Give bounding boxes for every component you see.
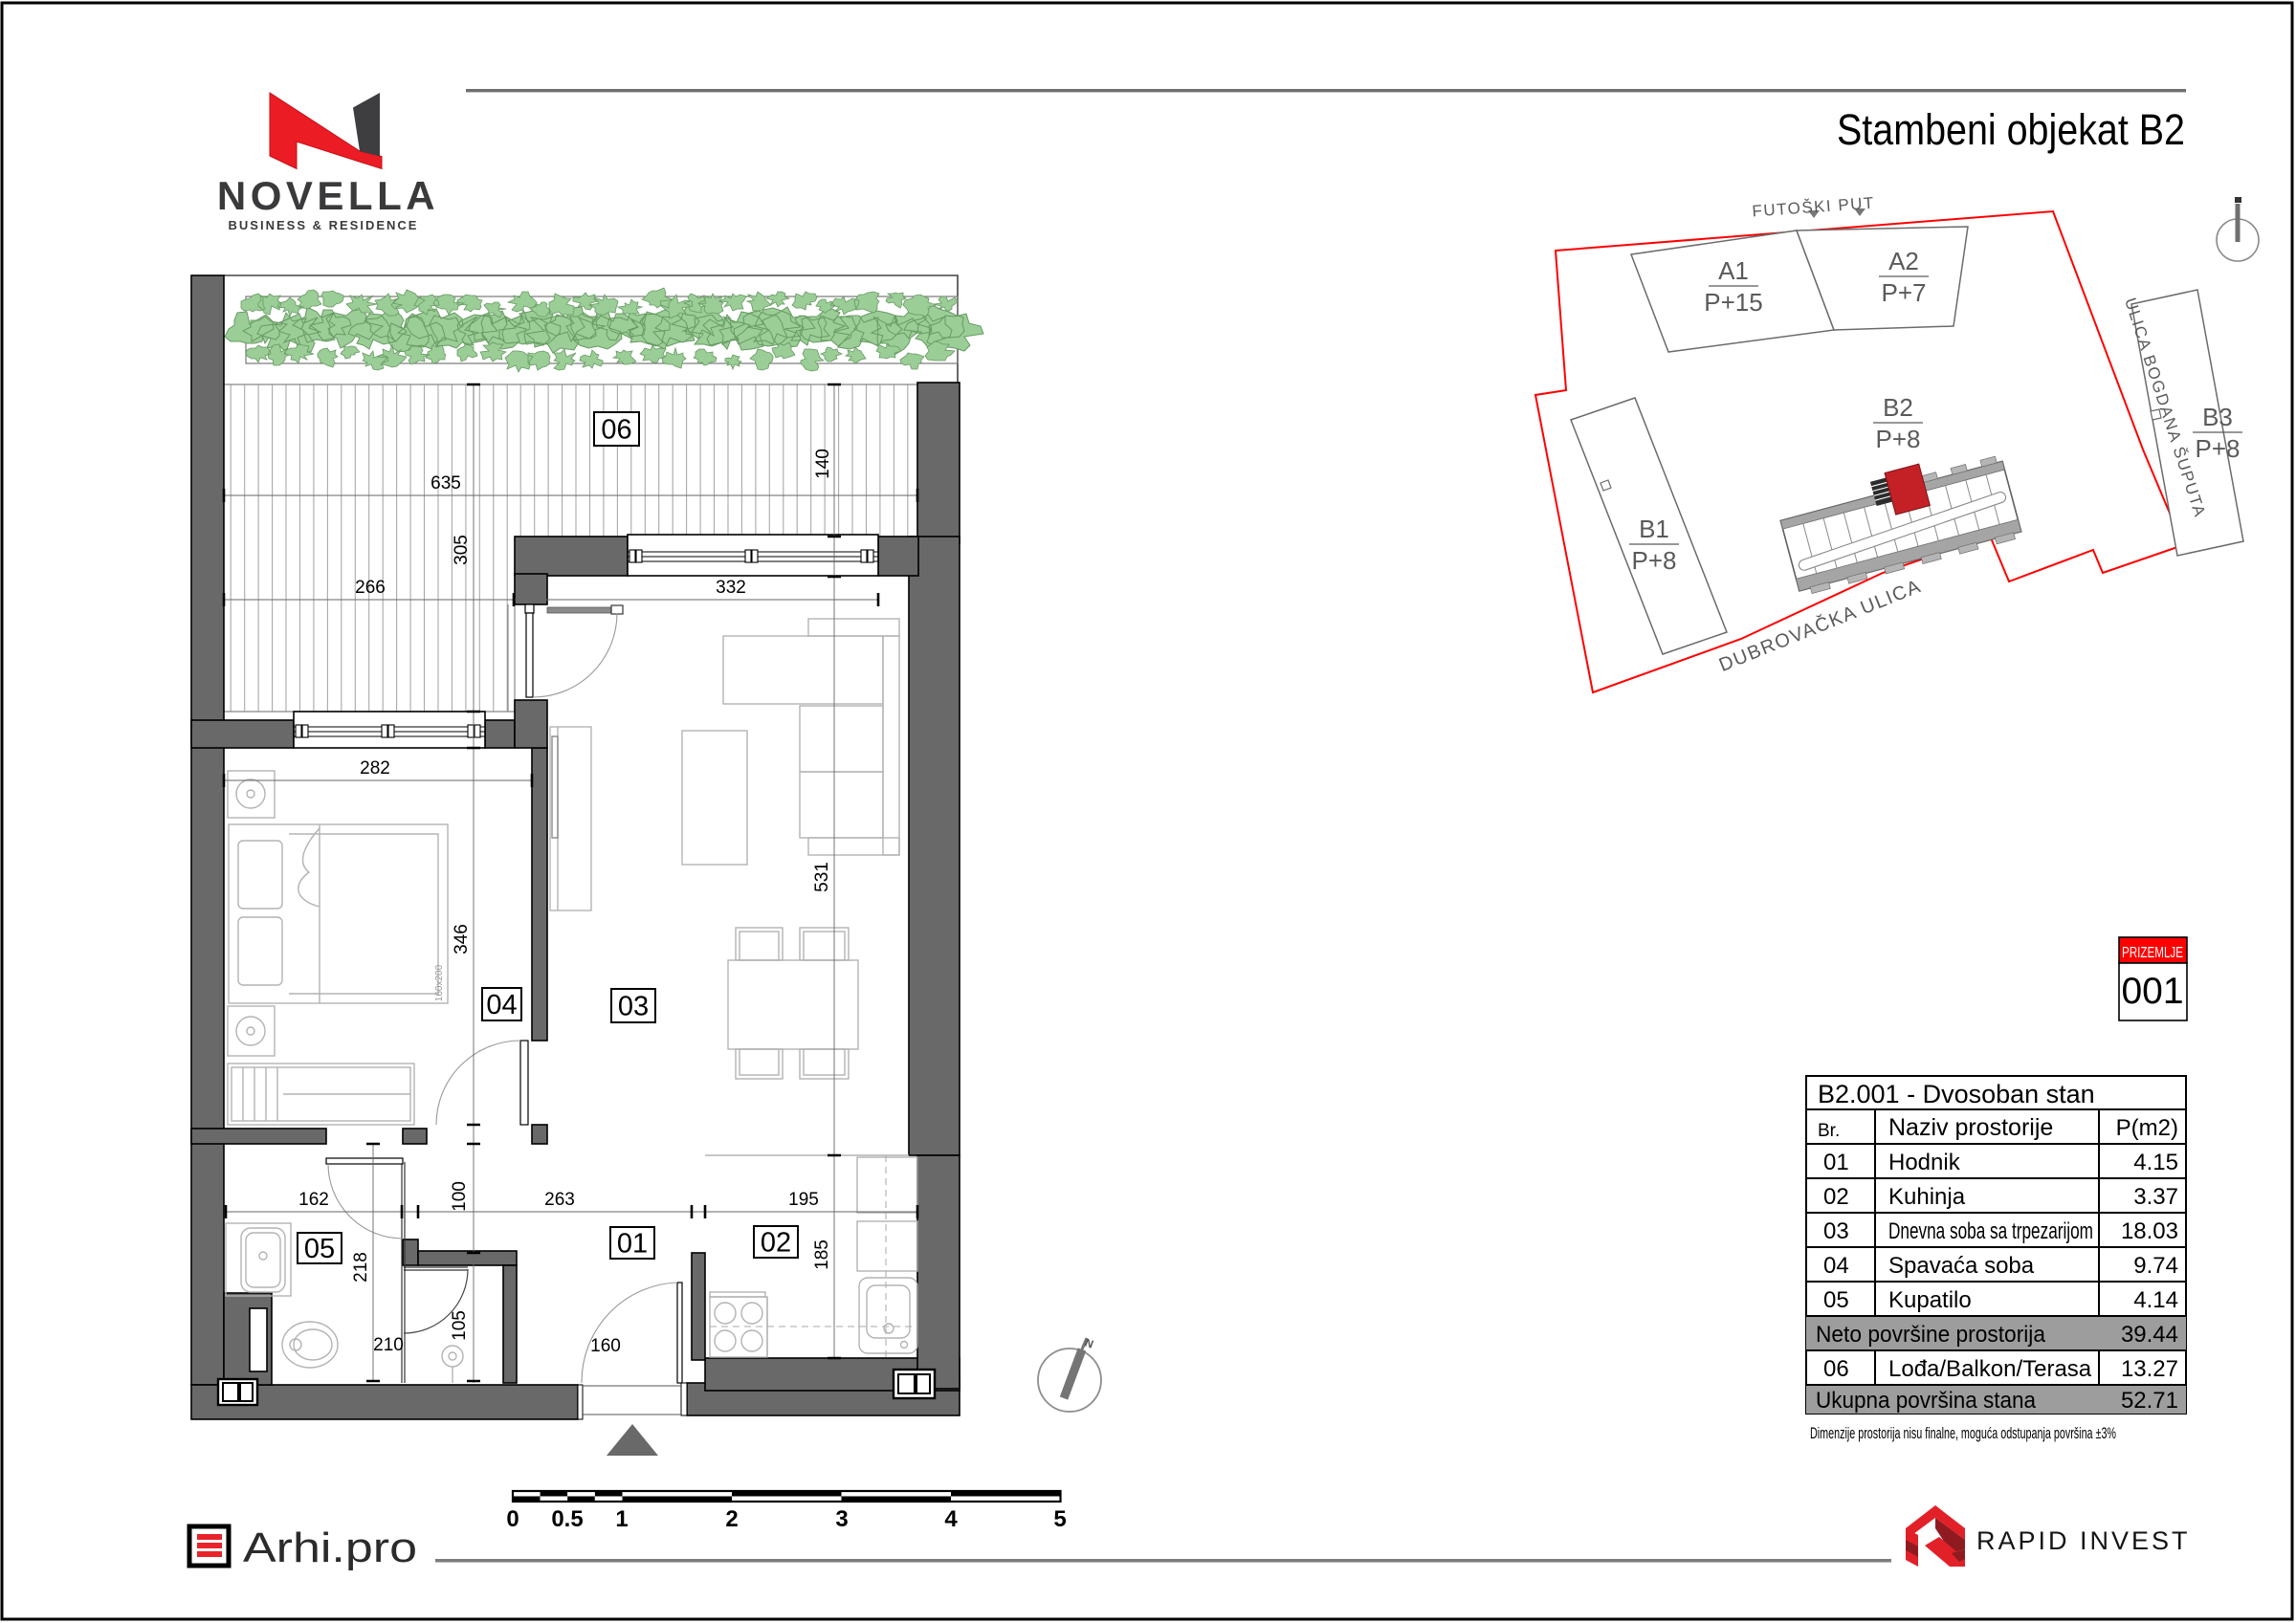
svg-text:06: 06 bbox=[1823, 1356, 1849, 1382]
svg-text:13.27: 13.27 bbox=[2121, 1356, 2178, 1382]
svg-text:Dimenzije prostorija nisu fina: Dimenzije prostorija nisu finalne, moguć… bbox=[1810, 1424, 2116, 1442]
svg-text:Spavaća soba: Spavaća soba bbox=[1888, 1253, 2035, 1279]
svg-text:0: 0 bbox=[506, 1506, 519, 1532]
svg-text:218: 218 bbox=[351, 1252, 371, 1283]
svg-text:P+15: P+15 bbox=[1704, 288, 1762, 317]
svg-text:39.44: 39.44 bbox=[2121, 1322, 2178, 1348]
svg-text:Kuhinja: Kuhinja bbox=[1888, 1184, 1966, 1210]
svg-text:Neto površine prostorija: Neto površine prostorija bbox=[1816, 1322, 2046, 1348]
svg-text:160: 160 bbox=[590, 1336, 621, 1356]
svg-text:04: 04 bbox=[486, 990, 517, 1020]
svg-text:P+8: P+8 bbox=[1632, 546, 1677, 575]
svg-text:05: 05 bbox=[304, 1234, 335, 1264]
svg-text:Dnevna soba sa trpezarijom: Dnevna soba sa trpezarijom bbox=[1888, 1218, 2093, 1244]
svg-text:Br.: Br. bbox=[1818, 1121, 1840, 1141]
svg-text:100: 100 bbox=[450, 1181, 470, 1212]
svg-text:52.71: 52.71 bbox=[2121, 1388, 2178, 1414]
svg-text:162: 162 bbox=[298, 1190, 329, 1210]
svg-text:04: 04 bbox=[1823, 1253, 1849, 1279]
svg-text:N: N bbox=[1083, 1336, 1095, 1351]
svg-text:B2: B2 bbox=[1883, 393, 1913, 422]
svg-text:01: 01 bbox=[1823, 1150, 1849, 1175]
svg-text:03: 03 bbox=[1823, 1218, 1849, 1244]
svg-text:105: 105 bbox=[450, 1310, 470, 1341]
svg-text:2: 2 bbox=[725, 1506, 738, 1532]
svg-text:210: 210 bbox=[373, 1335, 404, 1355]
svg-text:RAPID INVEST: RAPID INVEST bbox=[1976, 1526, 2191, 1555]
svg-text:5: 5 bbox=[1053, 1506, 1066, 1532]
svg-text:332: 332 bbox=[716, 578, 746, 598]
svg-text:305: 305 bbox=[452, 535, 472, 565]
svg-text:02: 02 bbox=[761, 1228, 791, 1259]
svg-text:1: 1 bbox=[615, 1506, 628, 1532]
svg-text:Arhi.pro: Arhi.pro bbox=[243, 1524, 417, 1571]
svg-text:03: 03 bbox=[618, 992, 649, 1022]
svg-text:01: 01 bbox=[617, 1229, 648, 1260]
svg-text:Kupatilo: Kupatilo bbox=[1888, 1287, 1972, 1313]
svg-text:635: 635 bbox=[430, 473, 461, 493]
svg-text:3.37: 3.37 bbox=[2133, 1184, 2178, 1210]
svg-text:18.03: 18.03 bbox=[2121, 1218, 2178, 1244]
svg-text:Ukupna površina stana: Ukupna površina stana bbox=[1816, 1388, 2037, 1414]
svg-text:282: 282 bbox=[360, 758, 390, 779]
svg-text:BUSINESS & RESIDENCE: BUSINESS & RESIDENCE bbox=[229, 218, 419, 232]
svg-text:160x200: 160x200 bbox=[434, 964, 445, 1001]
svg-text:001: 001 bbox=[2121, 971, 2183, 1012]
svg-text:Stambeni objekat B2: Stambeni objekat B2 bbox=[1837, 105, 2185, 154]
svg-text:140: 140 bbox=[813, 449, 833, 479]
svg-text:B3: B3 bbox=[2202, 403, 2233, 431]
svg-text:NOVELLA: NOVELLA bbox=[217, 173, 439, 218]
svg-text:346: 346 bbox=[452, 924, 472, 954]
svg-text:P(m2): P(m2) bbox=[2116, 1115, 2178, 1141]
svg-text:P+8: P+8 bbox=[2196, 434, 2241, 463]
svg-text:195: 195 bbox=[788, 1190, 819, 1210]
svg-text:B2.001 - Dvosoban stan: B2.001 - Dvosoban stan bbox=[1818, 1080, 2095, 1108]
svg-text:4.15: 4.15 bbox=[2133, 1150, 2178, 1175]
svg-text:B1: B1 bbox=[1639, 515, 1669, 543]
svg-text:Lođa/Balkon/Terasa: Lođa/Balkon/Terasa bbox=[1888, 1356, 2092, 1382]
svg-text:531: 531 bbox=[812, 862, 832, 892]
svg-text:02: 02 bbox=[1823, 1184, 1849, 1210]
svg-text:P+8: P+8 bbox=[1876, 425, 1921, 453]
svg-text:PRIZEMLJE: PRIZEMLJE bbox=[2122, 945, 2183, 961]
svg-text:3: 3 bbox=[835, 1506, 848, 1532]
svg-text:263: 263 bbox=[544, 1190, 575, 1210]
svg-text:Hodnik: Hodnik bbox=[1888, 1150, 1961, 1175]
svg-text:4.14: 4.14 bbox=[2133, 1287, 2178, 1313]
svg-text:06: 06 bbox=[601, 415, 631, 446]
svg-text:A1: A1 bbox=[1718, 256, 1749, 285]
svg-text:Naziv prostorije: Naziv prostorije bbox=[1888, 1114, 2053, 1141]
svg-text:185: 185 bbox=[812, 1239, 832, 1270]
svg-text:0.5: 0.5 bbox=[551, 1506, 583, 1532]
svg-text:05: 05 bbox=[1823, 1287, 1849, 1313]
svg-text:P+7: P+7 bbox=[1882, 278, 1927, 307]
svg-text:9.74: 9.74 bbox=[2133, 1253, 2178, 1279]
svg-text:4: 4 bbox=[944, 1506, 958, 1532]
svg-text:A2: A2 bbox=[1888, 247, 1919, 275]
svg-text:266: 266 bbox=[355, 578, 386, 598]
